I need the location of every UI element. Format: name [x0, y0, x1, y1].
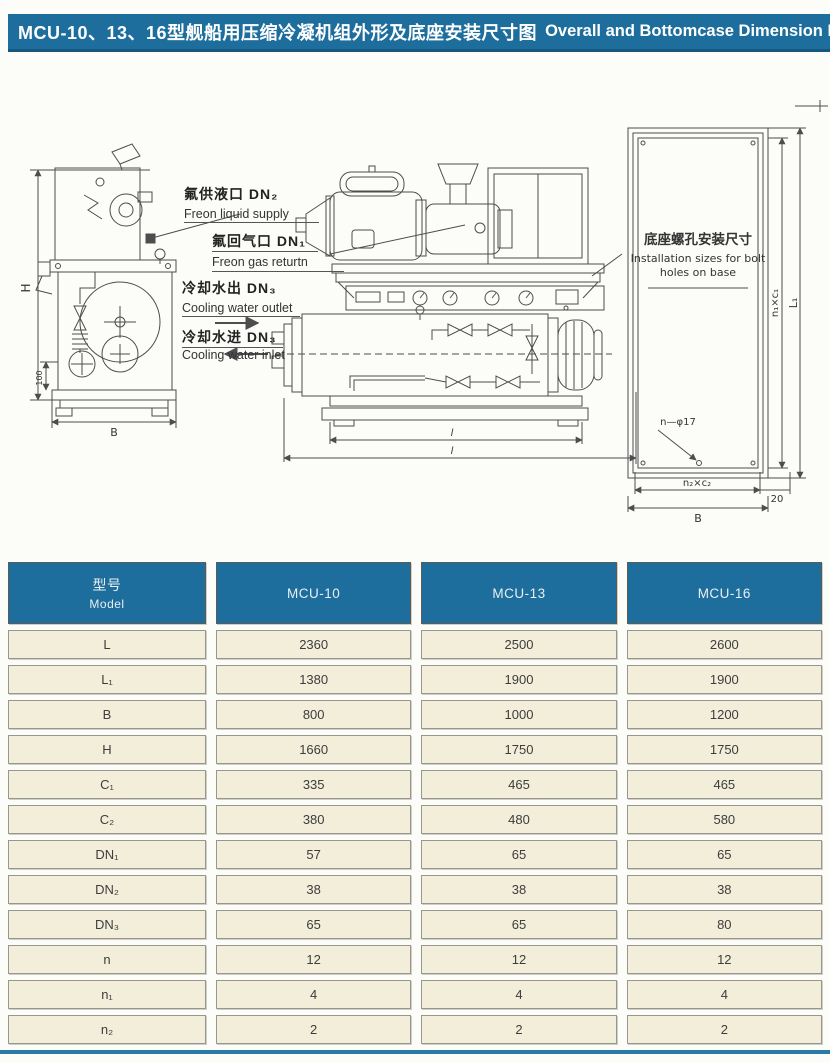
cell-value: 800 — [216, 700, 411, 729]
callout-cooling-water-outlet: 冷却水出 DN₃ Cooling water outlet — [182, 280, 300, 318]
callout-en: Cooling water inlet — [182, 348, 285, 364]
table-header-model: 型号 Model — [8, 562, 206, 624]
dim-l-outer-label: l — [451, 446, 454, 457]
callout-freon-liquid-supply: 氟供液口 DN₂ Freon liquid supply — [184, 186, 319, 224]
page-title-bar: MCU-10、13、16型舰船用压缩冷凝机组外形及底座安装尺寸图 Overall… — [8, 14, 830, 52]
dim-n1c1-label: n₁×c₁ — [770, 289, 781, 317]
cell-value: 465 — [421, 770, 616, 799]
cell-value: 57 — [216, 840, 411, 869]
dim-l1-label: L₁ — [787, 298, 800, 309]
base-plan-title-zh: 底座螺孔安装尺寸 — [644, 231, 752, 248]
dim-100-label: 100 — [35, 370, 44, 385]
row-label: L₁ — [8, 665, 206, 694]
dim-h-label: H — [19, 283, 33, 292]
cell-value: 580 — [627, 805, 822, 834]
cell-value: 2500 — [421, 630, 616, 659]
callout-cooling-water-inlet: 冷却水进 DN₃ Cooling water inlet — [182, 328, 285, 364]
row-label: DN₁ — [8, 840, 206, 869]
technical-drawing: H 100 B l l 底座螺孔安装尺寸 Installation sizes … — [0, 92, 830, 542]
table-header-mcu10: MCU-10 — [216, 562, 411, 624]
row-label: L — [8, 630, 206, 659]
base-plan-title-en2: holes on base — [660, 266, 736, 279]
row-label: C₂ — [8, 805, 206, 834]
callout-zh: 氟回气口 DN₁ — [212, 233, 318, 252]
drawing-labels: H 100 B l l 底座螺孔安装尺寸 Installation sizes … — [19, 231, 800, 525]
cell-value: 65 — [627, 840, 822, 869]
cell-value: 1750 — [421, 735, 616, 764]
dimension-table: 型号 Model MCU-10 MCU-13 MCU-16 L 2360 250… — [8, 562, 822, 1044]
cell-value: 2 — [627, 1015, 822, 1044]
dim-20-label: 20 — [771, 494, 784, 505]
table-header-mcu13: MCU-13 — [421, 562, 616, 624]
cell-value: 1660 — [216, 735, 411, 764]
cell-value: 4 — [421, 980, 616, 1009]
cell-value: 1750 — [627, 735, 822, 764]
row-label: DN₃ — [8, 910, 206, 939]
dim-n2c2-label: n₂×c₂ — [683, 478, 711, 489]
callout-en: Cooling water outlet — [182, 301, 300, 318]
cell-value: 38 — [627, 875, 822, 904]
callout-en: Freon liquid supply — [184, 207, 319, 224]
row-label: n — [8, 945, 206, 974]
cell-value: 65 — [421, 910, 616, 939]
cell-value: 12 — [421, 945, 616, 974]
document-page: MCU-10、13、16型舰船用压缩冷凝机组外形及底座安装尺寸图 Overall… — [0, 0, 830, 1063]
dim-l-inner-label: l — [451, 428, 454, 439]
callout-en: Freon gas returtn — [212, 255, 344, 272]
cell-value: 1000 — [421, 700, 616, 729]
cell-value: 465 — [627, 770, 822, 799]
cell-value: 4 — [216, 980, 411, 1009]
row-label: DN₂ — [8, 875, 206, 904]
cell-value: 2360 — [216, 630, 411, 659]
callout-zh: 冷却水进 DN₃ — [182, 329, 283, 348]
cell-value: 38 — [216, 875, 411, 904]
table-header-model-en: Model — [89, 597, 124, 611]
row-label: B — [8, 700, 206, 729]
cell-value: 1200 — [627, 700, 822, 729]
cell-value: 380 — [216, 805, 411, 834]
cell-value: 1900 — [421, 665, 616, 694]
row-label: n₁ — [8, 980, 206, 1009]
cell-value: 80 — [627, 910, 822, 939]
diagram-area: H 100 B l l 底座螺孔安装尺寸 Installation sizes … — [0, 92, 830, 552]
cell-value: 65 — [216, 910, 411, 939]
bolt-note-label: n—φ17 — [660, 417, 696, 428]
row-label: H — [8, 735, 206, 764]
cell-value: 38 — [421, 875, 616, 904]
row-label: n₂ — [8, 1015, 206, 1044]
callout-zh: 冷却水出 DN₃ — [182, 280, 300, 298]
cell-value: 2 — [216, 1015, 411, 1044]
bottom-rule — [0, 1050, 830, 1054]
dim-b-left-label: B — [110, 426, 118, 439]
cell-value: 4 — [627, 980, 822, 1009]
page-title-en: Overall and Bottomcase Dimension Diagram — [545, 22, 830, 41]
cell-value: 335 — [216, 770, 411, 799]
row-label: C₁ — [8, 770, 206, 799]
callout-zh: 氟供液口 DN₂ — [184, 186, 319, 204]
callout-freon-gas-return: 氟回气口 DN₁ Freon gas returtn — [212, 232, 344, 272]
cell-value: 2 — [421, 1015, 616, 1044]
cell-value: 12 — [216, 945, 411, 974]
cell-value: 1900 — [627, 665, 822, 694]
cell-value: 65 — [421, 840, 616, 869]
left-end-view-drawing — [30, 144, 176, 428]
dim-b-plan-label: B — [694, 512, 702, 525]
table-header-mcu16: MCU-16 — [627, 562, 822, 624]
base-plan-title-en1: Installation sizes for bolt — [631, 252, 766, 265]
cell-value: 2600 — [627, 630, 822, 659]
table-header-model-zh: 型号 — [93, 575, 122, 595]
front-view-drawing — [272, 164, 636, 464]
page-title-zh: MCU-10、13、16型舰船用压缩冷凝机组外形及底座安装尺寸图 — [18, 19, 537, 45]
cell-value: 12 — [627, 945, 822, 974]
cell-value: 480 — [421, 805, 616, 834]
cell-value: 1380 — [216, 665, 411, 694]
